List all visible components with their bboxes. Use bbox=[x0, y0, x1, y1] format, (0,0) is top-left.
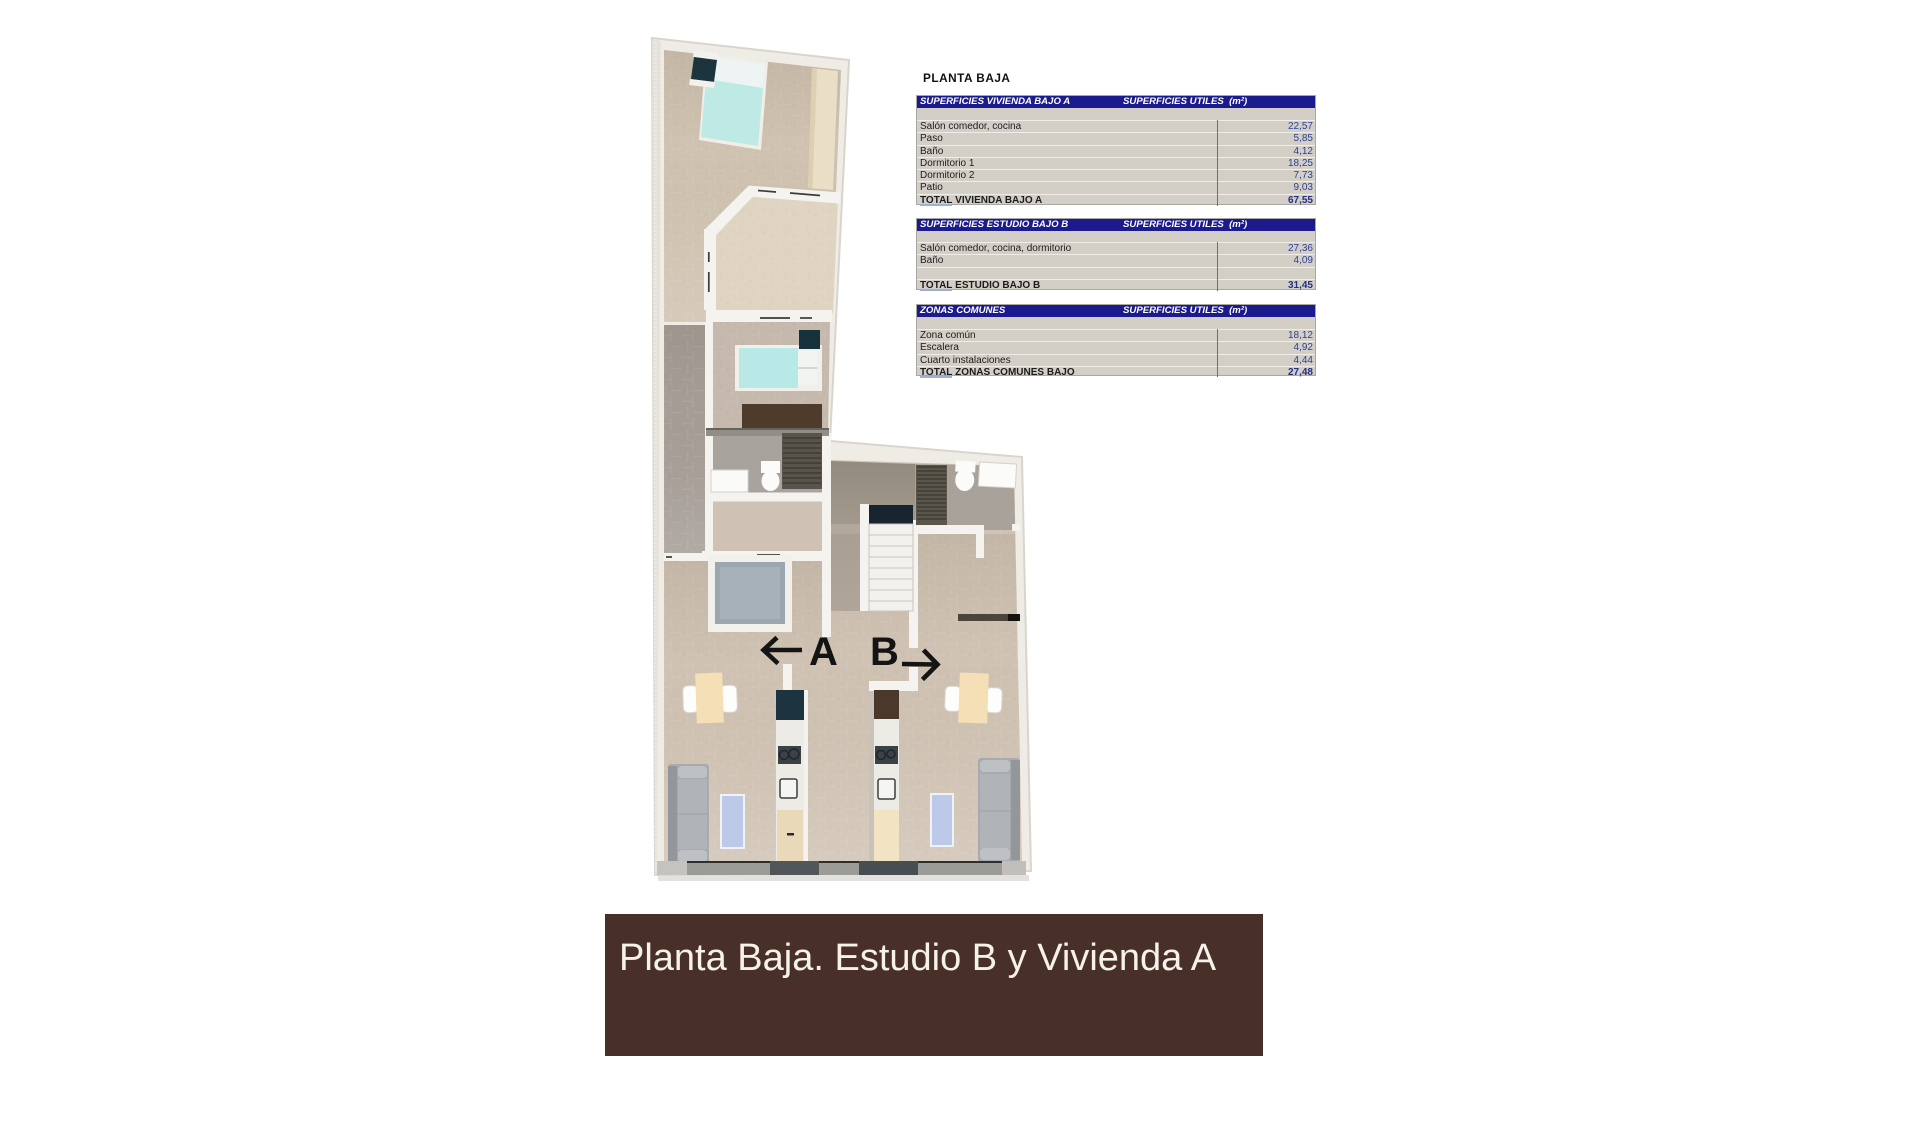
svg-text:A: A bbox=[809, 630, 838, 674]
svg-text:B: B bbox=[870, 630, 899, 674]
